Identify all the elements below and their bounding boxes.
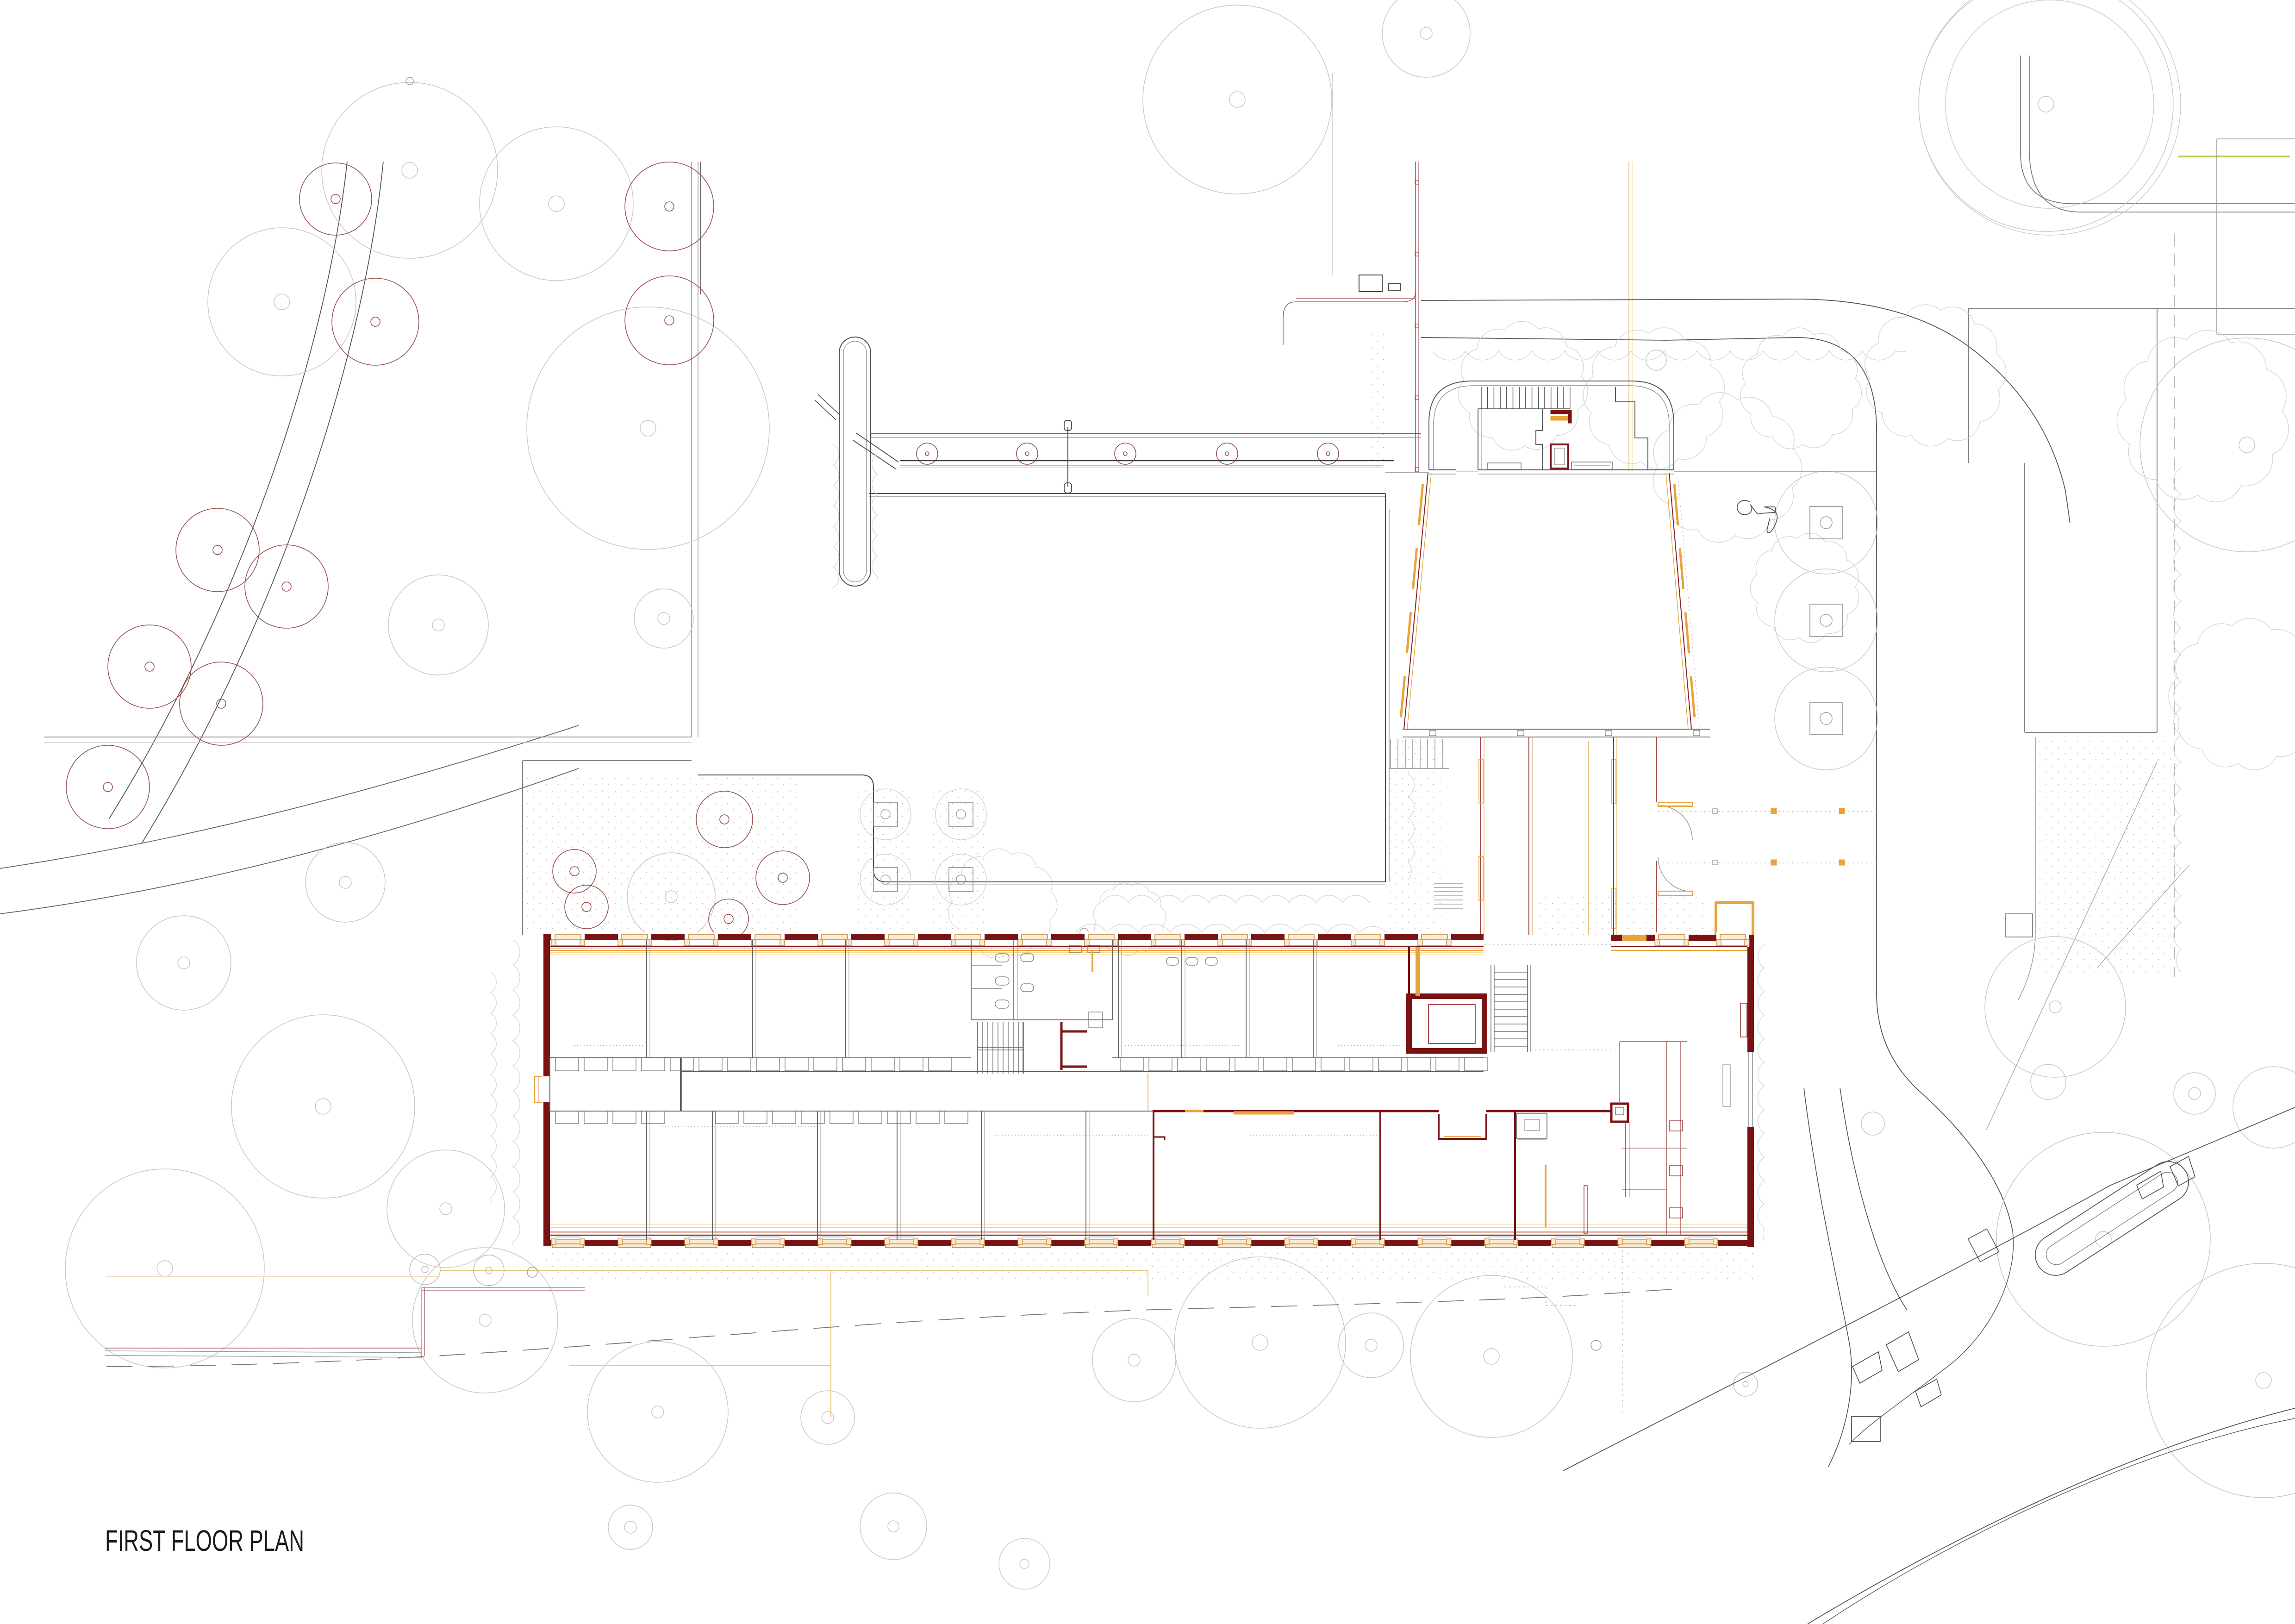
svg-text:FIRST FLOOR PLAN: FIRST FLOOR PLAN (105, 1524, 304, 1557)
